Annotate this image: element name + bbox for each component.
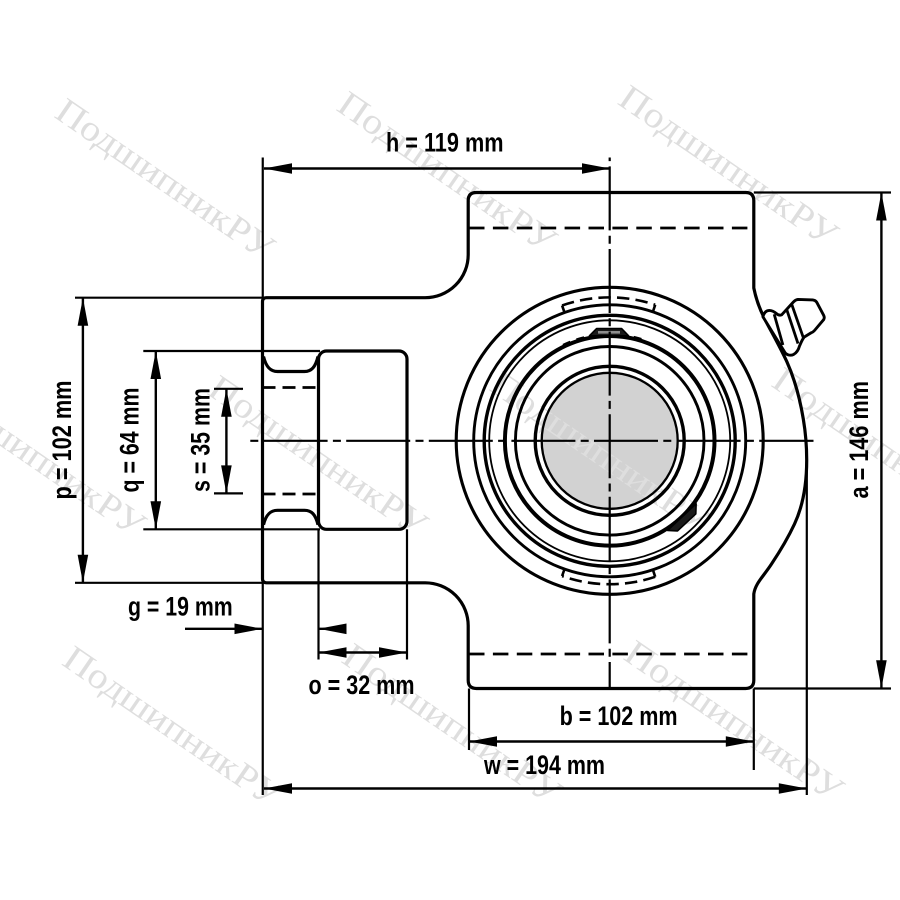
svg-text:b = 102 mm: b = 102 mm <box>560 701 678 731</box>
svg-text:h = 119 mm: h = 119 mm <box>386 128 504 158</box>
svg-text:q = 64 mm: q = 64 mm <box>115 388 145 493</box>
svg-text:a = 146 mm: a = 146 mm <box>844 381 874 499</box>
svg-text:g = 19 mm: g = 19 mm <box>128 592 233 622</box>
svg-text:o = 32 mm: o = 32 mm <box>309 670 415 700</box>
svg-text:w = 194 mm: w = 194 mm <box>483 750 605 780</box>
svg-text:s = 35 mm: s = 35 mm <box>186 388 216 492</box>
svg-text:p = 102 mm: p = 102 mm <box>47 381 77 500</box>
